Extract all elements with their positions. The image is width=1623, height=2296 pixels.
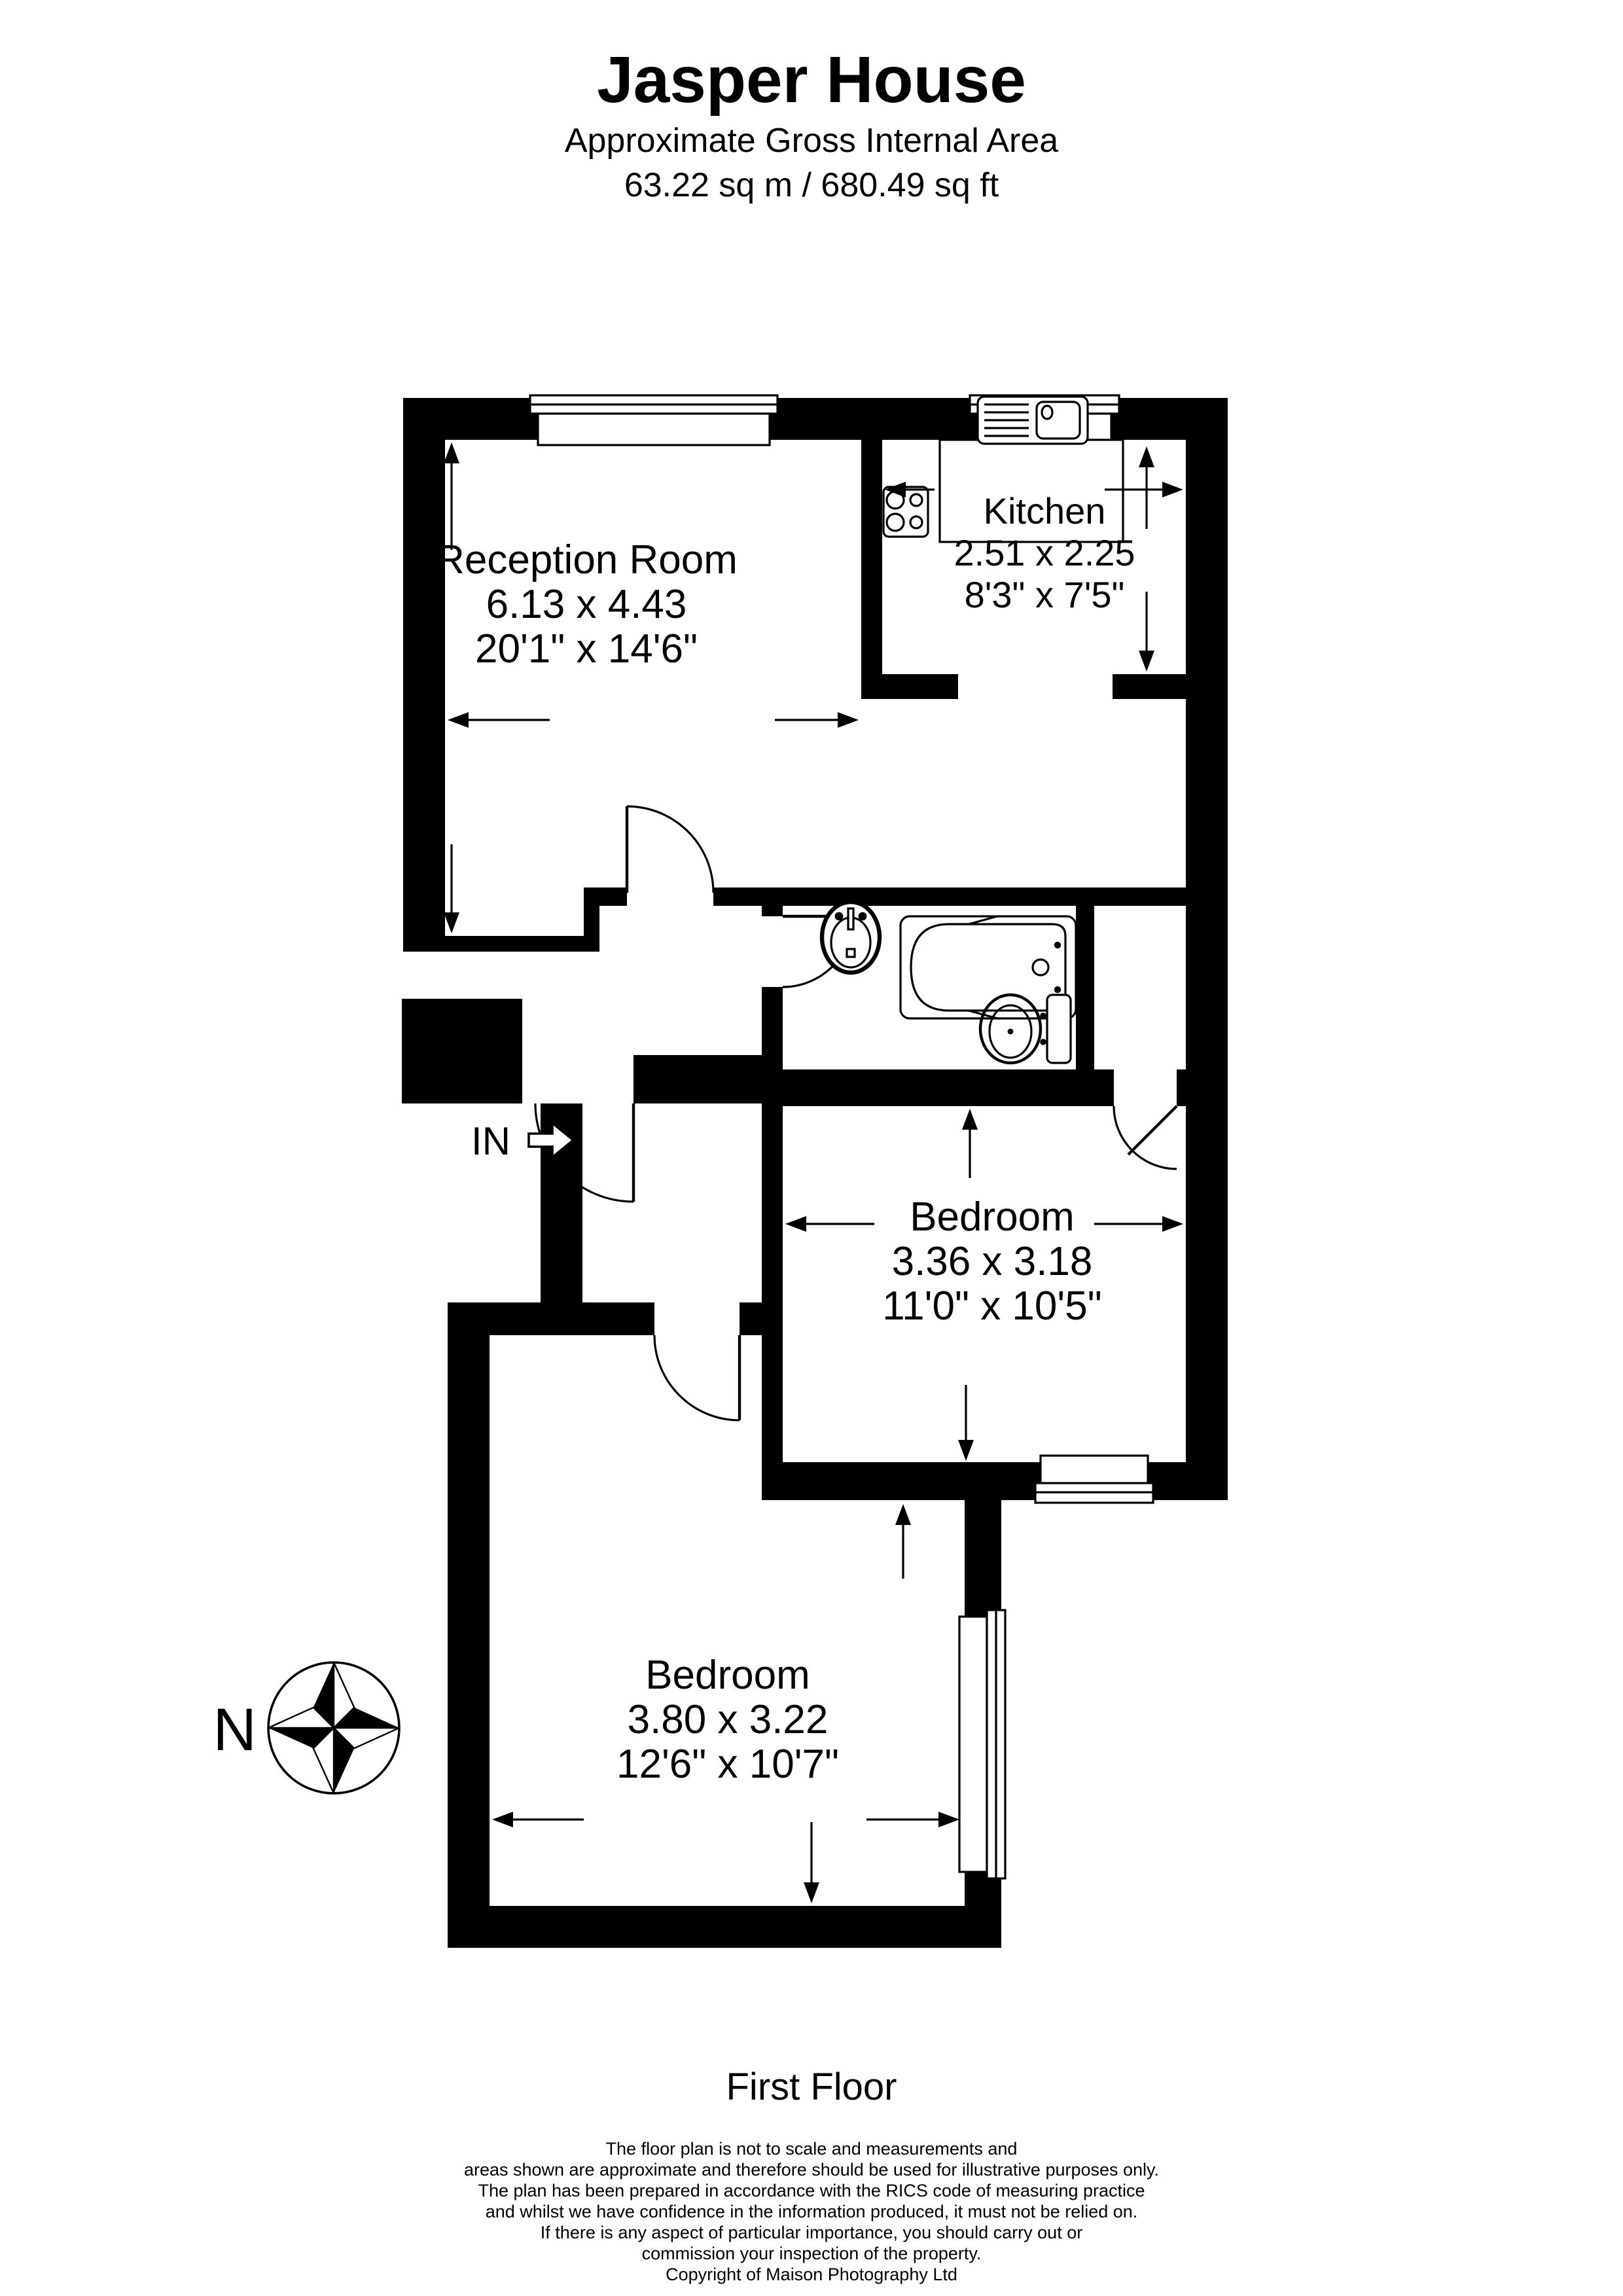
disclaimer-line: and whilst we have confidence in the inf… xyxy=(486,2202,1138,2221)
wall-segment xyxy=(1186,398,1228,1500)
header: Jasper House Approximate Gross Internal … xyxy=(565,43,1058,204)
disclaimer-line: If there is any aspect of particular imp… xyxy=(541,2223,1082,2242)
bedroom2-label: Bedroom 3.80 x 3.22 12'6" x 10'7" xyxy=(616,1653,839,1787)
window-sill xyxy=(959,1617,987,1872)
wall-segment xyxy=(861,398,882,699)
reception-door-opening xyxy=(627,885,713,908)
entry-block xyxy=(402,999,522,1103)
floorplan-page: Jasper House Approximate Gross Internal … xyxy=(0,0,1623,2296)
page-title: Jasper House xyxy=(597,43,1026,117)
disclaimer-copyright: Copyright of Maison Photography Ltd xyxy=(666,2265,957,2284)
room-imperial: 12'6" x 10'7" xyxy=(616,1742,839,1787)
disclaimer-line: areas shown are approximate and therefor… xyxy=(464,2160,1159,2179)
window-bedroom1 xyxy=(1035,1456,1153,1503)
room-imperial: 8'3" x 7'5" xyxy=(965,574,1125,615)
wall-segment xyxy=(1076,906,1094,1069)
disclaimer-line: commission your inspection of the proper… xyxy=(642,2244,982,2263)
room-name: Bedroom xyxy=(910,1194,1075,1240)
wall-segment xyxy=(762,1106,783,1500)
reception-door xyxy=(627,806,713,893)
wall-segment xyxy=(403,936,599,952)
bedroom1-door xyxy=(1114,1106,1177,1169)
footer: First Floor The floor plan is not to sca… xyxy=(464,2066,1159,2284)
kitchen-sink-icon xyxy=(978,397,1088,444)
compass-north-label: N xyxy=(213,1696,257,1763)
room-metric: 3.80 x 3.22 xyxy=(628,1697,829,1742)
page-subtitle: Approximate Gross Internal Area xyxy=(565,122,1058,160)
window-bedroom2 xyxy=(959,1610,1005,1878)
wall-segment xyxy=(1113,674,1186,699)
entrance-label: IN xyxy=(471,1119,510,1163)
entry-block xyxy=(633,1055,762,1103)
window-reception xyxy=(530,395,777,445)
window-sill xyxy=(1041,1456,1148,1486)
room-name: Reception Room xyxy=(435,537,738,583)
door-swing-arc xyxy=(654,1335,740,1420)
toilet-cistern xyxy=(1047,995,1071,1063)
room-metric: 2.51 x 2.25 xyxy=(954,532,1135,573)
wash-basin-icon xyxy=(822,902,880,973)
bathroom-fixtures xyxy=(822,902,1076,1063)
room-name: Kitchen xyxy=(984,490,1106,531)
wall-segment xyxy=(448,1906,1001,1948)
floor-label: First Floor xyxy=(726,2066,897,2108)
floor-plan-svg: Jasper House Approximate Gross Internal … xyxy=(0,0,1623,2296)
room-name: Bedroom xyxy=(645,1653,810,1698)
compass-rose-icon: N xyxy=(213,1662,399,1793)
room-metric: 3.36 x 3.18 xyxy=(892,1239,1093,1284)
bedroom2-door xyxy=(654,1335,740,1420)
wall-segment xyxy=(403,398,445,952)
room-imperial: 11'0" x 10'5" xyxy=(882,1283,1101,1329)
disclaimer-line: The plan has been prepared in accordance… xyxy=(478,2181,1145,2200)
door-leaf xyxy=(1128,1106,1177,1155)
bedroom1-door-opening xyxy=(1114,1067,1177,1109)
gross-area: 63.22 sq m / 680.49 sq ft xyxy=(624,166,999,204)
wall-segment xyxy=(861,674,958,699)
room-metric: 6.13 x 4.43 xyxy=(486,582,687,627)
room-imperial: 20'1" x 14'6" xyxy=(475,626,698,672)
wall-segment xyxy=(448,1302,490,1948)
bedroom2-door-opening xyxy=(654,1300,740,1338)
window-sill xyxy=(538,414,770,445)
door-swing-arc xyxy=(627,806,713,893)
bedroom1-label: Bedroom 3.36 x 3.18 11'0" x 10'5" xyxy=(882,1194,1101,1329)
reception-label: Reception Room 6.13 x 4.43 20'1" x 14'6" xyxy=(435,537,738,672)
disclaimer-line: The floor plan is not to scale and measu… xyxy=(606,2139,1018,2159)
bathroom-door-opening xyxy=(759,916,785,987)
